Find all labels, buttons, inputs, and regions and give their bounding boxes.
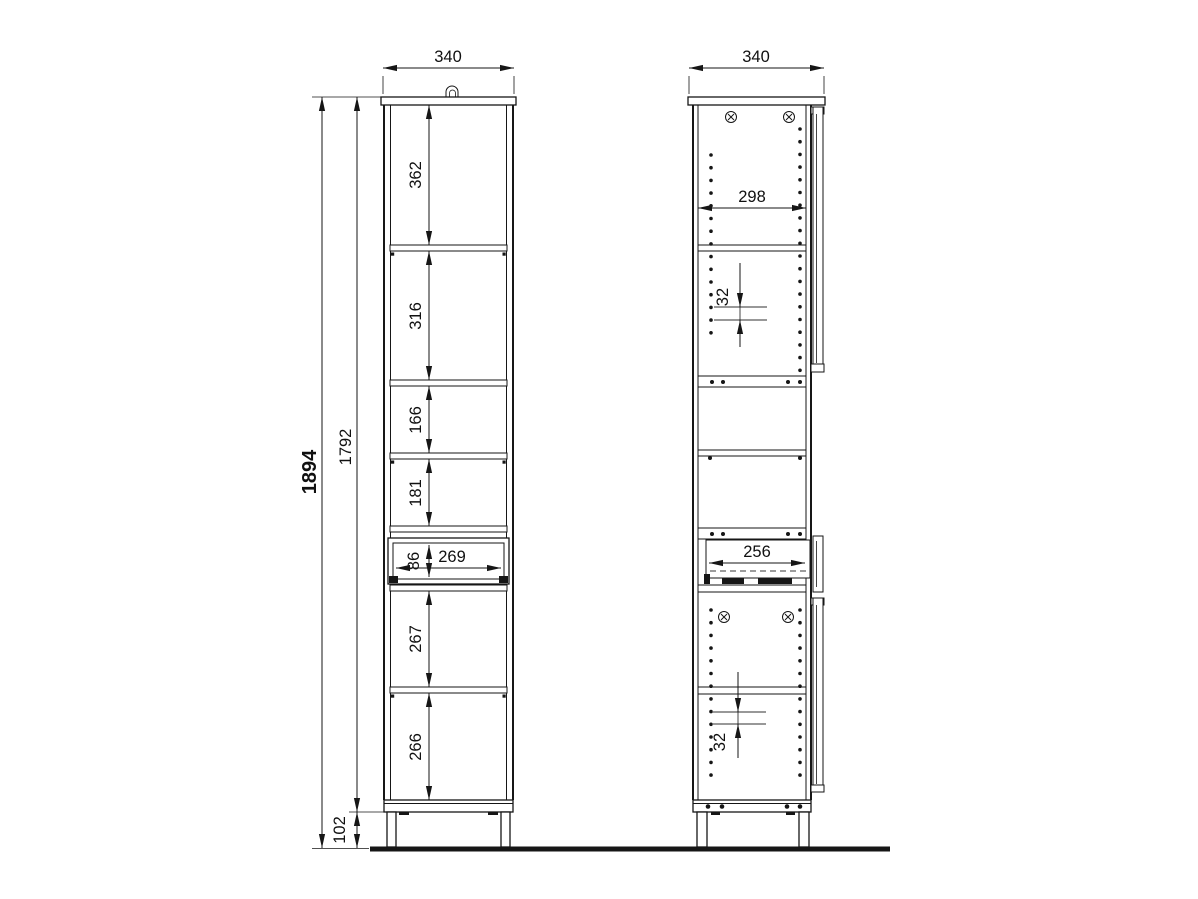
shelf-hole-dot <box>709 280 713 284</box>
shelf-hole-dot <box>709 684 713 688</box>
lower-door-profile <box>813 598 823 792</box>
shelf-hole-dot <box>798 684 802 688</box>
shelf-hole-dot <box>709 331 713 335</box>
side-fixed-shelf <box>698 585 806 592</box>
shelf-pin <box>503 253 506 256</box>
door-bottom-cap <box>811 785 824 792</box>
upper-door-profile <box>813 107 823 372</box>
shelf-hole-dot <box>709 217 713 221</box>
shelf-hole-dot <box>798 153 802 157</box>
shelf-hole-dot <box>709 293 713 297</box>
total-height-label: 1894 <box>299 449 321 494</box>
wall-bracket-inner-icon <box>450 90 456 97</box>
shelf-hole-dot <box>798 267 802 271</box>
drawer-front-profile <box>813 536 823 592</box>
shelf-screw-dot <box>786 532 790 536</box>
shelf-hole-dot <box>709 191 713 195</box>
front-shelf <box>390 585 507 591</box>
shelf-hole-dot <box>709 268 713 272</box>
compartment-height-label: 267 <box>407 625 425 653</box>
shelf-pin <box>503 695 506 698</box>
shelf-hole-dot <box>798 634 802 638</box>
shelf-hole-dot <box>798 203 802 207</box>
shelf-hole-dot <box>798 369 802 373</box>
cabinet-dimension-drawing: 340 <box>0 0 1198 899</box>
shelf-hole-dot <box>798 735 802 739</box>
bottom-screw <box>785 804 790 809</box>
shelf-hole-dot <box>709 621 713 625</box>
side-top-panel <box>688 97 825 105</box>
shelf-hole-dot <box>709 229 713 233</box>
shelf-hole-dot <box>798 773 802 777</box>
shelf-pin <box>798 456 802 460</box>
shelf-hole-dot <box>709 761 713 765</box>
shelf-hole-dot <box>798 165 802 169</box>
front-bottom-panel <box>384 800 513 812</box>
compartment-height-label: 316 <box>407 302 425 330</box>
leg-plate <box>488 812 498 815</box>
leg-height-label: 102 <box>331 816 349 844</box>
interior-height-label: 1792 <box>337 429 355 466</box>
shelf-hole-dot <box>798 178 802 182</box>
shelf-hole-dot <box>798 343 802 347</box>
shelf-screw-dot <box>721 532 725 536</box>
side-shelf <box>698 450 806 456</box>
front-shelf <box>390 526 507 532</box>
front-shelf <box>390 245 507 251</box>
shelf-hole-dot <box>709 697 713 701</box>
shelf-hole-dot <box>709 773 713 777</box>
shelf-hole-dot <box>798 318 802 322</box>
wall-bracket-icon <box>446 86 458 97</box>
shelf-screw-dot <box>721 380 725 384</box>
shelf-hole-dot <box>709 318 713 322</box>
front-shelf <box>390 380 507 386</box>
shelf-hole-dot <box>798 621 802 625</box>
leg-plate <box>786 812 795 815</box>
drawer-depth-label: 256 <box>743 543 771 561</box>
shelf-hole-dot <box>798 191 802 195</box>
shelf-screw-dot <box>710 532 714 536</box>
front-leg <box>387 812 396 847</box>
shelf-hole-dot <box>709 179 713 183</box>
shelf-hole-dot <box>709 204 713 208</box>
compartment-height-label: 166 <box>407 406 425 434</box>
side-shelf <box>698 245 806 251</box>
shelf-hole-dot <box>798 254 802 258</box>
side-width-dimension: 340 <box>689 48 824 94</box>
front-top-panel <box>381 97 516 105</box>
interior-depth-label: 298 <box>738 188 766 206</box>
shelf-hole-dot <box>798 697 802 701</box>
shelf-hole-dot <box>798 305 802 309</box>
shelf-hole-dot <box>798 280 802 284</box>
shelf-hole-dot <box>709 153 713 157</box>
compartment-height-label: 362 <box>407 161 425 189</box>
side-view: 340 <box>688 48 825 847</box>
side-width-label: 340 <box>742 48 770 66</box>
drawer-width-label: 269 <box>438 548 466 566</box>
compartment-height-label: 266 <box>407 733 425 761</box>
shelf-hole-dot <box>709 242 713 246</box>
shelf-pin <box>391 461 394 464</box>
shelf-screw-dot <box>710 380 714 384</box>
drawer-slide-right <box>499 576 508 583</box>
shelf-hole-dot <box>798 216 802 220</box>
shelf-screw-dot <box>786 380 790 384</box>
shelf-hole-dot <box>798 608 802 612</box>
shelf-hole-dot <box>798 710 802 714</box>
bottom-screw <box>706 804 711 809</box>
shelf-hole-dot <box>798 659 802 663</box>
shelf-hole-dot <box>798 292 802 296</box>
drawer-slide-left <box>389 576 398 583</box>
drawer-height-label: 86 <box>405 552 423 570</box>
hole-pitch-dimension-top: 32 <box>714 263 767 347</box>
shelf-hole-dot <box>709 608 713 612</box>
shelf-hole-dot <box>798 140 802 144</box>
side-shelf <box>698 687 806 694</box>
shelf-pin <box>391 253 394 256</box>
hole-pitch-dimension-bottom: 32 <box>711 672 766 758</box>
front-shelf <box>390 687 507 693</box>
shelf-hole-dot <box>798 330 802 334</box>
shelf-pin <box>503 461 506 464</box>
shelf-hole-dot <box>798 761 802 765</box>
shelf-pin <box>708 456 712 460</box>
side-bottom-panel <box>693 800 811 812</box>
leg-plate <box>399 812 409 815</box>
side-carcass <box>688 97 825 847</box>
front-carcass <box>381 86 516 847</box>
front-shelf <box>390 453 507 459</box>
leg-plate <box>711 812 720 815</box>
shelf-hole-dot <box>798 748 802 752</box>
shelf-hole-dot <box>798 646 802 650</box>
shelf-hole-dot <box>798 723 802 727</box>
hole-pitch-bottom-label: 32 <box>711 733 729 751</box>
hole-pitch-top-label: 32 <box>714 288 732 306</box>
shelf-hole-dot <box>709 659 713 663</box>
shelf-hole-dot <box>798 242 802 246</box>
door-bottom-cap <box>811 364 824 372</box>
shelf-hole-dot <box>798 672 802 676</box>
front-view: 340 <box>299 48 516 849</box>
technical-drawing-canvas: 340 <box>0 0 1198 899</box>
shelf-hole-dot <box>709 634 713 638</box>
shelf-hole-dot <box>798 127 802 131</box>
bottom-screw <box>720 804 725 809</box>
shelf-hole-dot <box>798 229 802 233</box>
front-width-label: 340 <box>434 48 462 66</box>
drawer-rail <box>722 578 744 584</box>
shelf-hole-dot <box>709 646 713 650</box>
shelf-hole-dot <box>709 306 713 310</box>
drawer-rail <box>758 578 792 584</box>
shelf-hole-dot <box>709 255 713 259</box>
shelf-hole-dot <box>798 356 802 360</box>
shelf-pin <box>391 695 394 698</box>
shelf-screw-dot <box>798 532 802 536</box>
side-leg <box>697 812 707 847</box>
bottom-screw <box>798 804 803 809</box>
shelf-screws <box>710 380 802 536</box>
shelf-hole-dot <box>709 166 713 170</box>
compartment-height-label: 181 <box>407 479 425 507</box>
side-leg <box>799 812 809 847</box>
shelf-hole-dot <box>709 672 713 676</box>
depth-dimension: 298 <box>698 188 806 208</box>
front-leg <box>501 812 510 847</box>
height-dimensions: 1894 1792 102 <box>299 97 384 849</box>
drawer-rail <box>704 574 710 584</box>
shelf-screw-dot <box>798 380 802 384</box>
